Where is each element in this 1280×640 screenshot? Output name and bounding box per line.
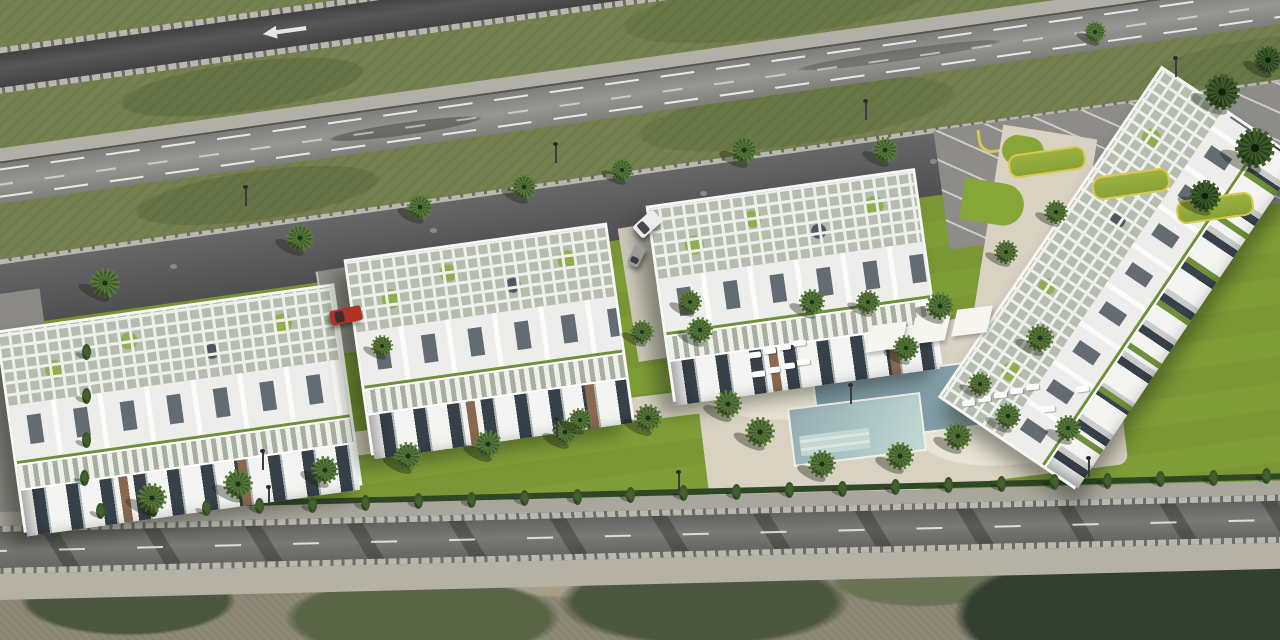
- palm-tree: [1204, 74, 1240, 110]
- palm-tree: [610, 158, 634, 182]
- palm-tree: [1026, 324, 1054, 352]
- palm-tree: [714, 390, 742, 418]
- cypress-tree: [1209, 470, 1218, 486]
- manhole-cover: [700, 191, 707, 196]
- cypress-tree: [80, 470, 89, 486]
- palm-tree: [1189, 180, 1221, 212]
- cypress-tree: [679, 485, 688, 501]
- palm-tree: [678, 290, 702, 314]
- cypress-tree: [361, 495, 370, 511]
- cypress-tree: [1156, 471, 1165, 487]
- cypress-tree: [573, 489, 582, 505]
- palm-tree: [634, 404, 662, 432]
- street-lamp: [1088, 459, 1090, 477]
- cypress-tree: [1050, 474, 1059, 490]
- cypress-tree: [891, 479, 900, 495]
- palm-tree: [1055, 415, 1081, 441]
- palm-tree: [474, 430, 502, 458]
- palm-tree: [968, 372, 992, 396]
- palm-tree: [995, 403, 1021, 429]
- palm-tree: [630, 320, 654, 344]
- palm-tree: [926, 292, 954, 320]
- palm-tree: [893, 335, 919, 361]
- cypress-tree: [626, 487, 635, 503]
- cypress-tree: [82, 432, 91, 448]
- cypress-tree: [82, 388, 91, 404]
- street-lamp: [268, 488, 270, 506]
- cypress-tree: [838, 481, 847, 497]
- cypress-tree: [308, 497, 317, 513]
- street-lamp: [245, 188, 247, 206]
- palm-tree: [394, 442, 422, 470]
- palm-tree: [1235, 128, 1275, 168]
- manhole-cover: [930, 159, 937, 164]
- cypress-tree: [1262, 468, 1271, 484]
- palm-tree: [223, 469, 253, 499]
- palm-tree: [137, 483, 167, 513]
- palm-tree: [730, 136, 758, 164]
- street-lamp: [1175, 59, 1177, 77]
- cypress-tree: [520, 490, 529, 506]
- palm-tree: [872, 137, 898, 163]
- street-lamp: [678, 473, 680, 491]
- palm-tree: [1254, 46, 1280, 74]
- street-lamp: [850, 386, 852, 404]
- manhole-cover: [430, 228, 437, 233]
- shade-sail: [951, 305, 993, 336]
- palm-tree: [511, 174, 537, 200]
- cypress-tree: [1103, 473, 1112, 489]
- palm-tree: [1044, 200, 1068, 224]
- palm-tree: [994, 240, 1018, 264]
- palm-tree: [286, 224, 314, 252]
- street-lamp: [555, 145, 557, 163]
- cypress-tree: [82, 344, 91, 360]
- manhole-cover: [170, 264, 177, 269]
- cypress-tree: [785, 482, 794, 498]
- cypress-tree: [202, 500, 211, 516]
- palm-tree: [90, 268, 120, 298]
- palm-tree: [745, 417, 775, 447]
- palm-tree: [808, 450, 836, 478]
- palm-tree: [1084, 21, 1106, 43]
- palm-tree: [568, 408, 592, 432]
- cypress-tree: [414, 493, 423, 509]
- palm-tree: [407, 194, 433, 220]
- cypress-tree: [96, 503, 105, 519]
- palm-tree: [371, 335, 393, 357]
- palm-tree: [799, 289, 825, 315]
- cypress-tree: [732, 484, 741, 500]
- street-lamp: [865, 102, 867, 120]
- cypress-tree: [467, 492, 476, 508]
- cypress-tree: [255, 498, 264, 514]
- left-arrow-marking: [262, 22, 307, 41]
- aerial-render-scene: [0, 0, 1280, 640]
- street-lamp: [556, 420, 558, 438]
- street-lamp: [262, 452, 264, 470]
- palm-tree: [311, 456, 339, 484]
- palm-tree: [856, 290, 880, 314]
- palm-tree: [886, 442, 914, 470]
- palm-tree: [944, 422, 972, 450]
- palm-tree: [687, 317, 713, 343]
- cypress-tree: [944, 477, 953, 493]
- cypress-tree: [997, 476, 1006, 492]
